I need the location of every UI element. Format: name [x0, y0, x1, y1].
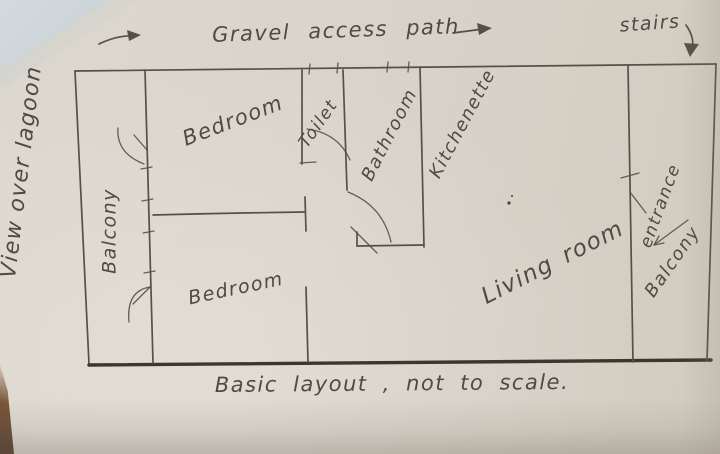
bedroom2-balcony-door	[129, 287, 150, 322]
right-balcony-wall	[621, 65, 639, 362]
path-direction-arrow-left	[99, 30, 141, 44]
left-balcony-wall	[141, 70, 155, 363]
stairs-down-arrow	[684, 25, 699, 57]
floorplan-sketch-photo: Gravel access path stairs View over lago…	[0, 0, 720, 454]
label-caption: Basic layout , not to scale.	[215, 372, 570, 396]
bathroom-door-arc	[348, 192, 391, 253]
label-stairs: stairs	[619, 12, 681, 35]
paper-specks	[507, 195, 513, 205]
room-label-balcony-left: Balcony	[101, 188, 120, 274]
bedroom1-balcony-door	[118, 128, 147, 164]
